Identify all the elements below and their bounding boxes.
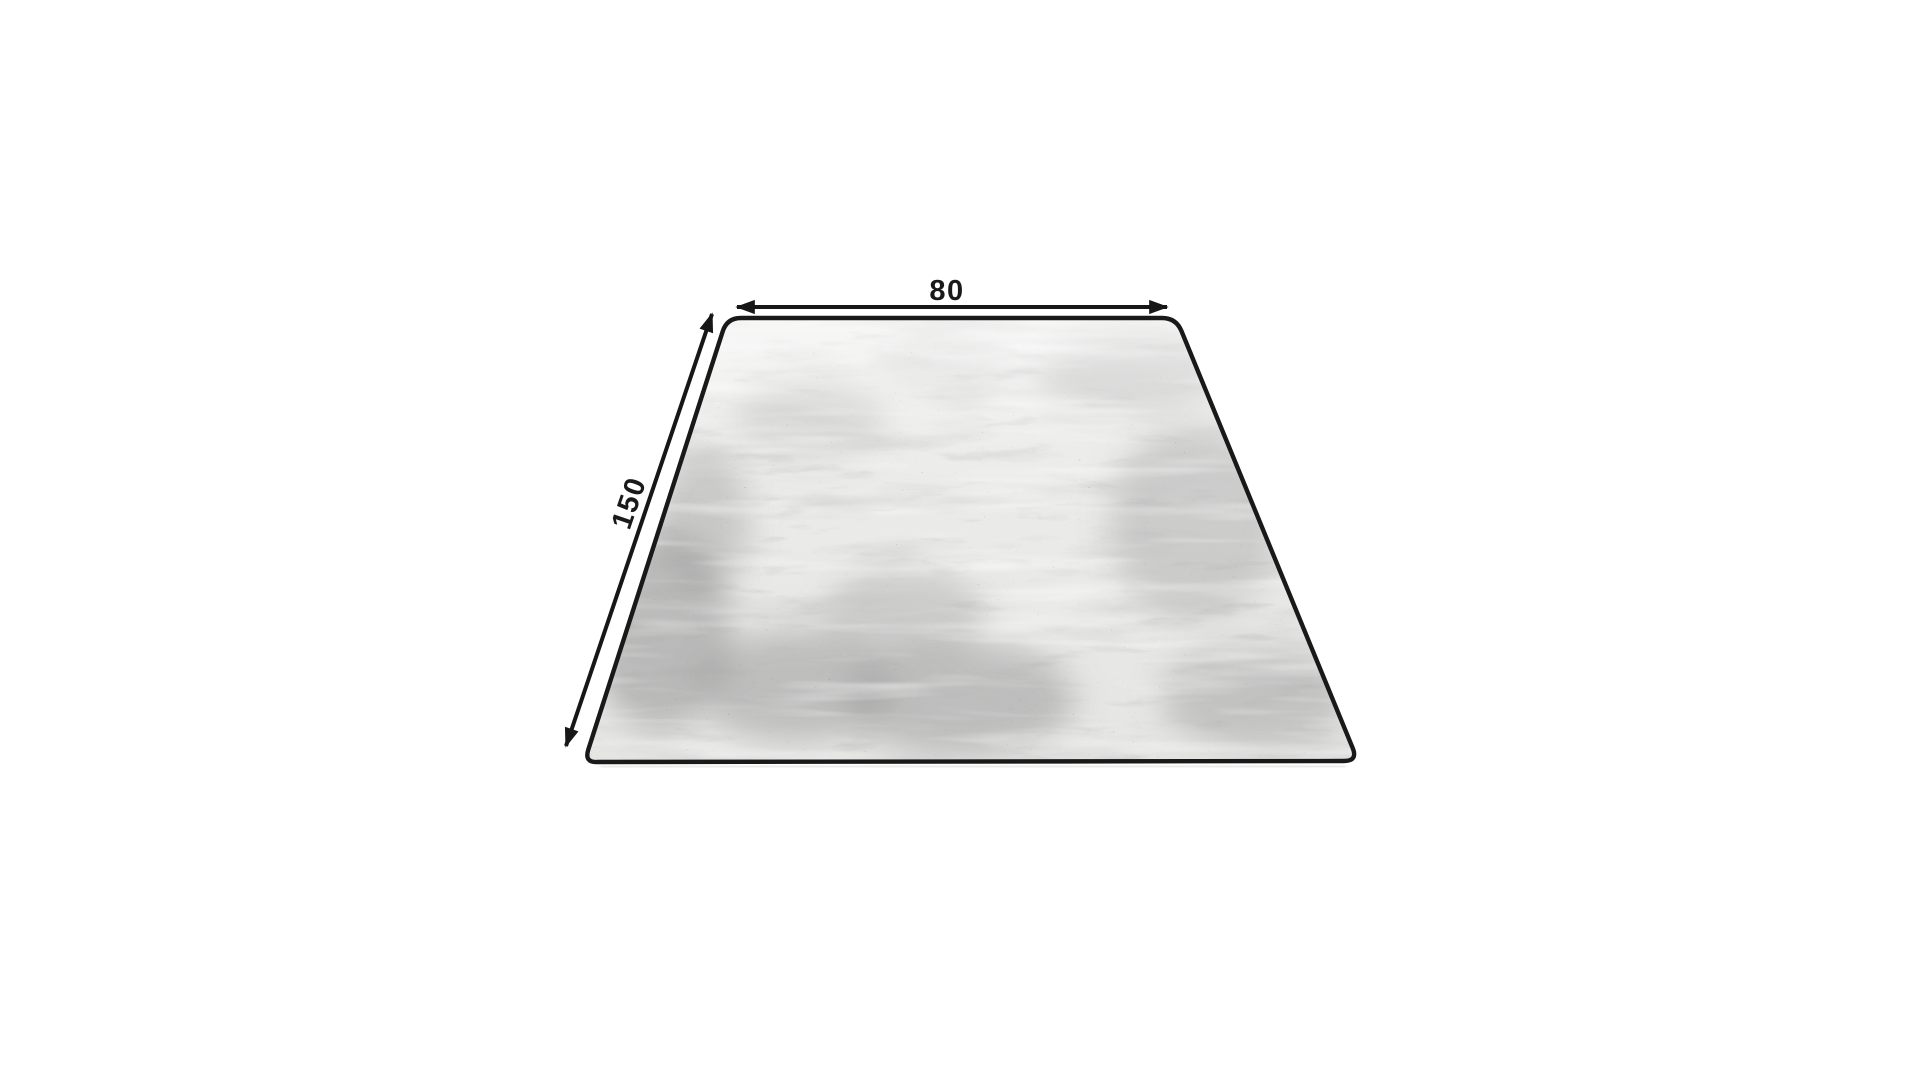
- dimension-diagram-canvas: 80 150: [0, 0, 1920, 1080]
- length-dimension-label: 150: [606, 473, 653, 533]
- product-dimension-diagram: 80 150: [0, 0, 1920, 1080]
- rug-texture: [555, 295, 1385, 785]
- rug-shadow: [600, 766, 1346, 767]
- width-dimension-label: 80: [929, 275, 964, 307]
